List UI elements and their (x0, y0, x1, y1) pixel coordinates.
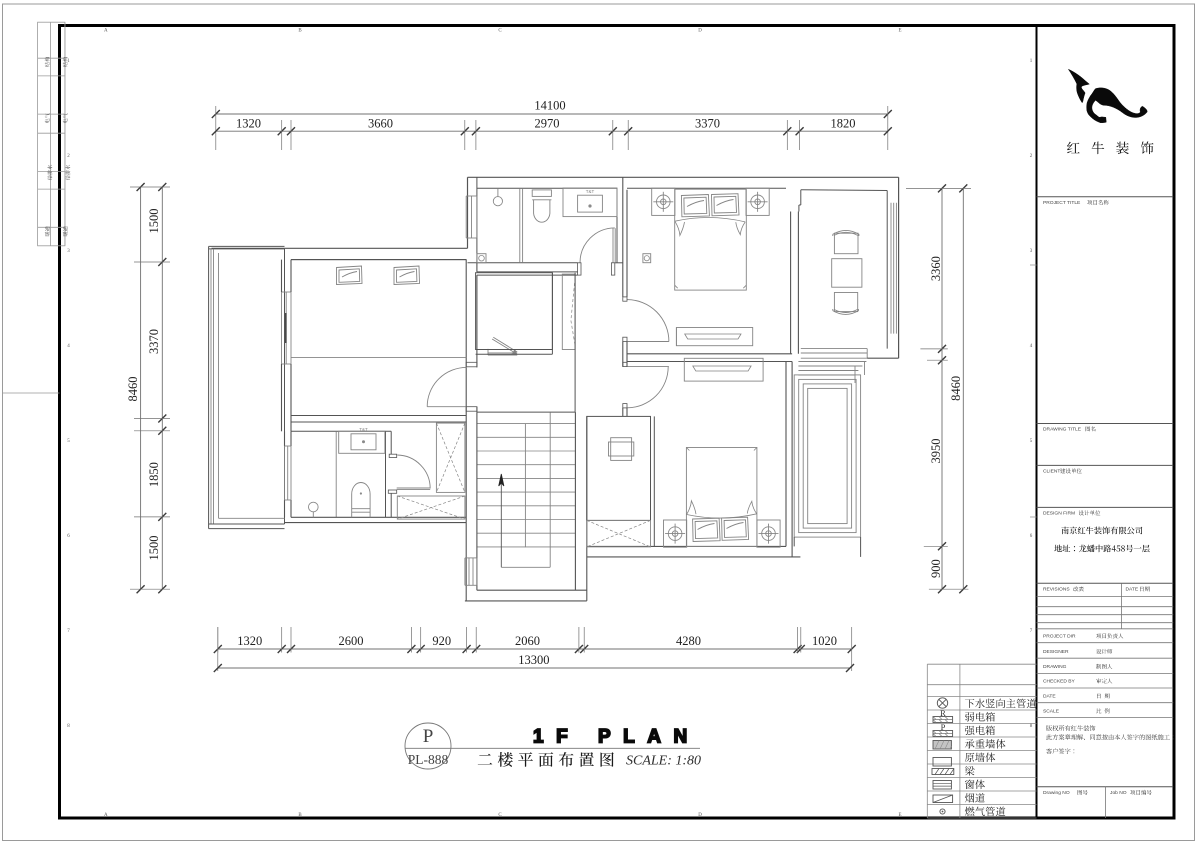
svg-text:2600: 2600 (339, 634, 364, 648)
svg-text:8460: 8460 (126, 377, 140, 402)
svg-text:4280: 4280 (676, 634, 701, 648)
svg-text:E: E (898, 29, 901, 34)
svg-text:1: 1 (1030, 59, 1033, 64)
svg-text:D: D (698, 813, 702, 818)
svg-text:920: 920 (432, 634, 451, 648)
svg-text:DESIGN FIRM: DESIGN FIRM (1043, 511, 1075, 517)
svg-text:SCALE: 1:80: SCALE: 1:80 (626, 754, 701, 769)
svg-text:1500: 1500 (147, 209, 161, 234)
svg-text:3: 3 (67, 249, 70, 254)
svg-text:P: P (941, 722, 946, 732)
svg-text:A: A (104, 813, 108, 818)
svg-text:8: 8 (67, 724, 70, 729)
svg-text:PROJECT TITLE: PROJECT TITLE (1043, 200, 1081, 206)
svg-text:E: E (898, 813, 901, 818)
svg-text:P: P (423, 726, 434, 747)
svg-text:DESIGNER: DESIGNER (1043, 649, 1069, 655)
svg-text:Drawing NO: Drawing NO (1043, 790, 1070, 796)
svg-text:T&T: T&T (359, 427, 368, 432)
svg-text:2: 2 (67, 154, 70, 159)
svg-text:C: C (498, 29, 502, 34)
svg-text:4: 4 (67, 344, 70, 349)
svg-text:DATE: DATE (1043, 694, 1056, 700)
svg-text:A: A (104, 29, 108, 34)
svg-text:DATE: DATE (1126, 587, 1139, 593)
svg-text:3: 3 (1030, 249, 1033, 254)
svg-text:1320: 1320 (237, 634, 262, 648)
svg-text:4: 4 (1030, 344, 1033, 349)
svg-text:7: 7 (67, 629, 70, 634)
svg-text:T&T: T&T (586, 189, 595, 194)
svg-text:SCALE: SCALE (1043, 709, 1060, 715)
svg-text:3370: 3370 (147, 329, 161, 354)
svg-text:1320: 1320 (236, 117, 261, 131)
svg-text:13300: 13300 (518, 653, 549, 667)
svg-text:2060: 2060 (515, 634, 540, 648)
svg-text:3370: 3370 (695, 117, 720, 131)
svg-text:900: 900 (929, 559, 943, 578)
svg-text:6: 6 (67, 534, 70, 539)
svg-text:2970: 2970 (535, 117, 560, 131)
svg-text:1820: 1820 (831, 117, 856, 131)
svg-text:Job NO: Job NO (1110, 790, 1127, 796)
svg-text:14100: 14100 (534, 99, 565, 113)
svg-text:1850: 1850 (147, 462, 161, 487)
svg-text:D: D (698, 29, 702, 34)
svg-text:1500: 1500 (147, 536, 161, 561)
svg-text:3950: 3950 (929, 439, 943, 464)
svg-text:3660: 3660 (368, 117, 393, 131)
svg-text:CLIENT: CLIENT (1043, 469, 1060, 475)
svg-text:PROJECT DIR: PROJECT DIR (1043, 634, 1076, 640)
svg-text:DRAWING TITLE: DRAWING TITLE (1043, 427, 1082, 433)
svg-text:5: 5 (67, 439, 70, 444)
svg-text:6: 6 (1030, 534, 1033, 539)
svg-text:1F PLAN: 1F PLAN (533, 727, 700, 748)
svg-text:1: 1 (67, 59, 70, 64)
svg-text:1020: 1020 (812, 634, 837, 648)
svg-text:2: 2 (1030, 154, 1033, 159)
svg-text:CHECKED BY: CHECKED BY (1043, 679, 1076, 685)
svg-text:7: 7 (1030, 629, 1033, 634)
svg-text:3360: 3360 (929, 256, 943, 281)
svg-text:8: 8 (1030, 724, 1033, 729)
svg-text:PL-888: PL-888 (408, 752, 449, 767)
svg-text:REVISIONS: REVISIONS (1043, 587, 1070, 593)
svg-text:5: 5 (1030, 439, 1033, 444)
svg-text:DRAWING: DRAWING (1043, 664, 1067, 670)
svg-text:R: R (940, 708, 946, 718)
svg-text:B: B (298, 29, 302, 34)
svg-text:8460: 8460 (949, 376, 963, 401)
